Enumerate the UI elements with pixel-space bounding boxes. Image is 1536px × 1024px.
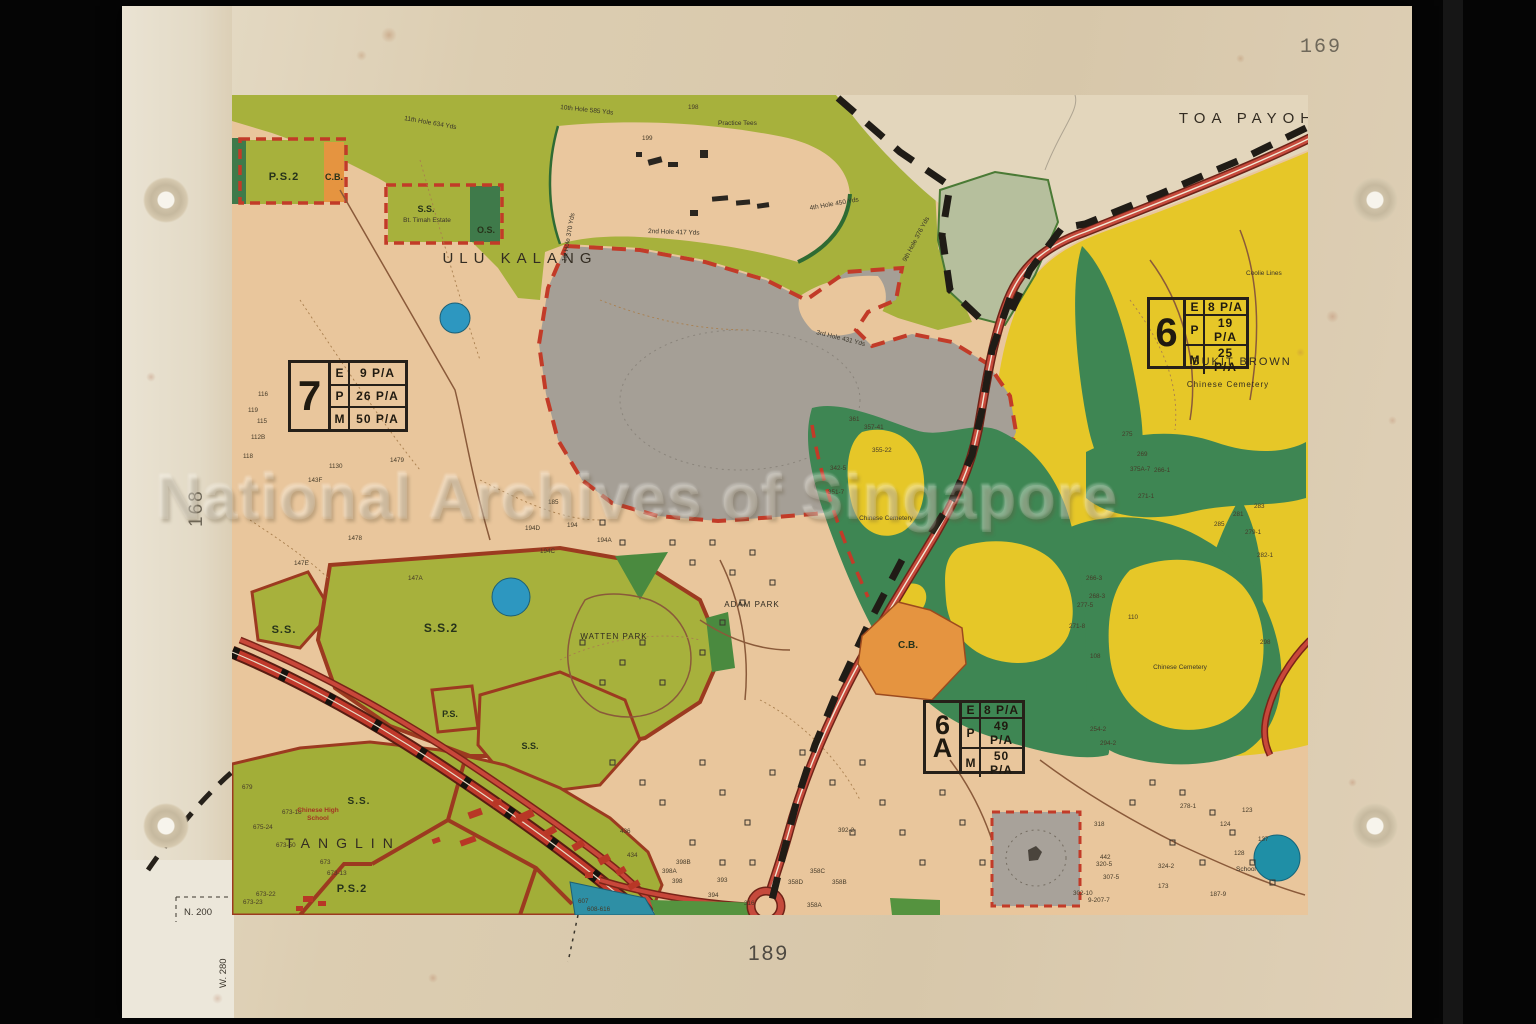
parcel-number: 320-5 [1096,861,1113,868]
archive-watermark: National Archives of Singapore [156,462,1118,534]
label-practice-tees: Practice Tees [718,120,758,127]
parcel-number: 137 [1258,836,1269,843]
grid-north-label: N. 200 [184,907,212,918]
density-rows: E8 P/A P19 P/A M25 P/A [1186,300,1246,366]
zone-label-cb: C.B. [898,640,918,651]
parcel-number: 108 [1090,653,1101,660]
density-value: 50 P/A [981,749,1022,777]
density-row: E8 P/A [962,703,1022,719]
parcel-number: 361 [849,416,860,423]
parcel-number: 266-1 [1154,467,1171,474]
parcel-number: 675-24 [253,824,273,831]
parcel-number: 254-2 [1090,726,1107,733]
parcel-number: 194A [597,537,613,544]
parcel-number: 283 [1254,503,1265,510]
parcel-number: 147E [294,560,309,567]
density-id-top: 7 [298,378,321,414]
parcel-number: 1478 [348,535,363,542]
parcel-number: 268-3 [1089,593,1106,600]
parcel-number: 124 [1220,821,1231,828]
boundary-dot-margin [568,915,578,962]
parcel-number: 187-9 [1210,891,1227,898]
density-id-top: 6 [1155,316,1177,350]
density-row: E9 P/A [331,363,405,386]
parcel-number: 673 [320,859,331,866]
adjacent-sheet-bottom: 189 [748,942,789,966]
parcel-number: 147A [408,575,424,582]
density-row: M25 P/A [1186,346,1246,374]
parcel-number: 398 [672,878,683,885]
zone-label-ps: P.S. [442,709,458,719]
density-value: 9 P/A [350,366,405,380]
density-key: M [962,749,981,777]
parcel-number: 277-5 [1077,602,1094,609]
density-rows: E9 P/A P26 P/A M50 P/A [331,363,405,429]
parcel-number: 358C [810,868,826,875]
density-value: 19 P/A [1205,316,1246,344]
grid-west-label: W. 280 [218,958,229,988]
parcel-number: 358A [807,902,823,909]
parcel-number: 281 [1233,511,1244,518]
zone-label-bt-timah-estate: Bt. Timah Estate [403,217,451,224]
parcel-number: 275 [1122,431,1133,438]
density-box-6: 6 E8 P/A P19 P/A M25 P/A [1147,297,1249,369]
parcel-number: 115 [257,418,268,425]
parcel-number: 194C [540,548,556,555]
parcel-number: 394 [708,892,719,899]
density-value: 50 P/A [350,412,405,426]
cemetery-clearing [1109,560,1264,730]
parcel-number: 398B [676,859,691,866]
green-strip [890,898,940,915]
parcel-number: 271-1 [1138,493,1155,500]
parcel-number: 673-23 [243,899,263,906]
label-tanglin: TANGLIN [285,835,401,851]
density-row: M50 P/A [962,749,1022,777]
parcel-number: 199 [642,135,653,142]
parcel-number: 271-8 [1069,623,1086,630]
density-row: P49 P/A [962,719,1022,749]
parcel-number: 357-41 [864,424,884,431]
pond [440,303,470,333]
density-key: M [331,408,350,429]
parcel-number: 393 [717,877,728,884]
density-box-id: 6 [1150,300,1186,366]
label-chinese-cemetery: Chinese Cemetery [1187,380,1269,389]
density-box-id: 6 A [926,703,962,771]
parcel-number: 358B [832,879,847,886]
parcel-number: 358D [788,879,804,886]
parcel-number: 298 [1260,639,1271,646]
density-value: 49 P/A [981,719,1022,747]
parcel-number: 318 [1094,821,1105,828]
zone-label-ss: S.S. [272,624,297,636]
parcel-number: 607 [578,898,589,905]
density-value: 8 P/A [1205,300,1246,314]
punch-hole [143,803,189,849]
parcel-number: 282-1 [1257,552,1274,559]
parcel-number: 279-1 [1245,529,1262,536]
label-chinese-high-school: School [307,815,329,822]
zone-label-ps2: P.S.2 [337,883,368,895]
density-row: E8 P/A [1186,300,1246,316]
density-value: 8 P/A [981,703,1022,717]
parcel-number: 398A [662,868,678,875]
parcel-number: 375A-7 [1130,466,1151,473]
zone-label-ss: S.S. [348,796,371,807]
parcel-number: 128 [1234,850,1245,857]
zone-label-ps2: P.S.2 [269,171,300,183]
zone-label-os: O.S. [477,225,495,235]
density-key: E [1186,300,1205,314]
zone-label-cb: C.B. [325,172,343,182]
parcel-number: 673-22 [256,891,276,898]
parcel-number: 110 [1128,614,1139,621]
parcel-number: 324-2 [1158,863,1175,870]
zone-label-ss: S.S. [521,741,538,751]
scanned-map-sheet: 116119115112B1181130143F1479147E1478147A… [0,0,1536,1024]
density-key: E [962,703,981,717]
label-ulu-pandan: ULU PANDAN [222,681,233,765]
parcel-number: 269 [1137,451,1148,458]
parcel-number: 266-3 [1086,575,1103,582]
parcel-number: 198 [688,104,699,111]
label-watten-park: WATTEN PARK [580,632,647,641]
parcel-number: 9-207-7 [1088,897,1110,904]
punch-hole [143,177,189,223]
label-chinese-high-school: Chinese High [297,807,339,814]
density-row: P26 P/A [331,386,405,409]
parcel-number: 123 [1242,807,1253,814]
density-box-7: 7 E9 P/A P26 P/A M50 P/A [288,360,408,432]
density-rows: E8 P/A P49 P/A M50 P/A [962,703,1022,771]
parcel-number: 173 [1158,883,1169,890]
parcel-number: 112B [251,434,265,441]
zone-ss-estate [388,186,470,242]
parcel-number: 294-2 [1100,740,1117,747]
parcel-number: 118 [243,453,254,460]
label-toa-payoh: TOA PAYOH [1179,110,1317,127]
pond [492,578,530,616]
parcel-number: 307-5 [1103,874,1120,881]
label-coolie-lines: Coolie Lines [1246,270,1283,277]
parcel-number: 436 [620,828,631,835]
parcel-number: 673-13 [327,870,347,877]
label-chinese-cemetery: Chinese Cemetery [1153,664,1208,671]
density-key: P [331,386,350,407]
label-school: School [1236,866,1256,873]
parcel-number: 442 [1100,854,1111,861]
density-box-6a: 6 A E8 P/A P49 P/A M50 P/A [923,700,1025,774]
zone-label-ss2: S.S.2 [424,621,458,635]
density-key: E [331,363,350,384]
label-adam-park: ADAM PARK [724,600,780,609]
parcel-number: 302-10 [1073,890,1093,897]
density-row: M50 P/A [331,408,405,429]
density-key: P [962,719,981,747]
parcel-number: 355-22 [872,447,892,454]
density-row: P19 P/A [1186,316,1246,346]
parcel-number: 679 [242,784,253,791]
parcel-number: 316 [744,900,755,907]
parcel-number: 116 [258,391,269,398]
punch-hole [1352,177,1398,223]
label-ulu-kalang: ULU KALANG [442,250,597,267]
density-key: P [1186,316,1205,344]
parcel-number: 434 [627,852,638,859]
density-box-id: 7 [291,363,331,429]
zone-label-ss: S.S. [417,204,434,214]
parcel-number: 608-616 [587,906,611,913]
parcel-number: 278-1 [1180,803,1197,810]
density-value: 26 P/A [350,389,405,403]
density-id-bottom: A [933,737,953,760]
parcel-number: 119 [248,407,259,414]
parcel-number: 392-2 [838,827,855,834]
density-value: 25 P/A [1205,346,1246,374]
punch-hole [1352,803,1398,849]
sheet-number: 169 [1300,36,1342,59]
parcel-number: 285 [1214,521,1225,528]
density-key: M [1186,346,1205,374]
